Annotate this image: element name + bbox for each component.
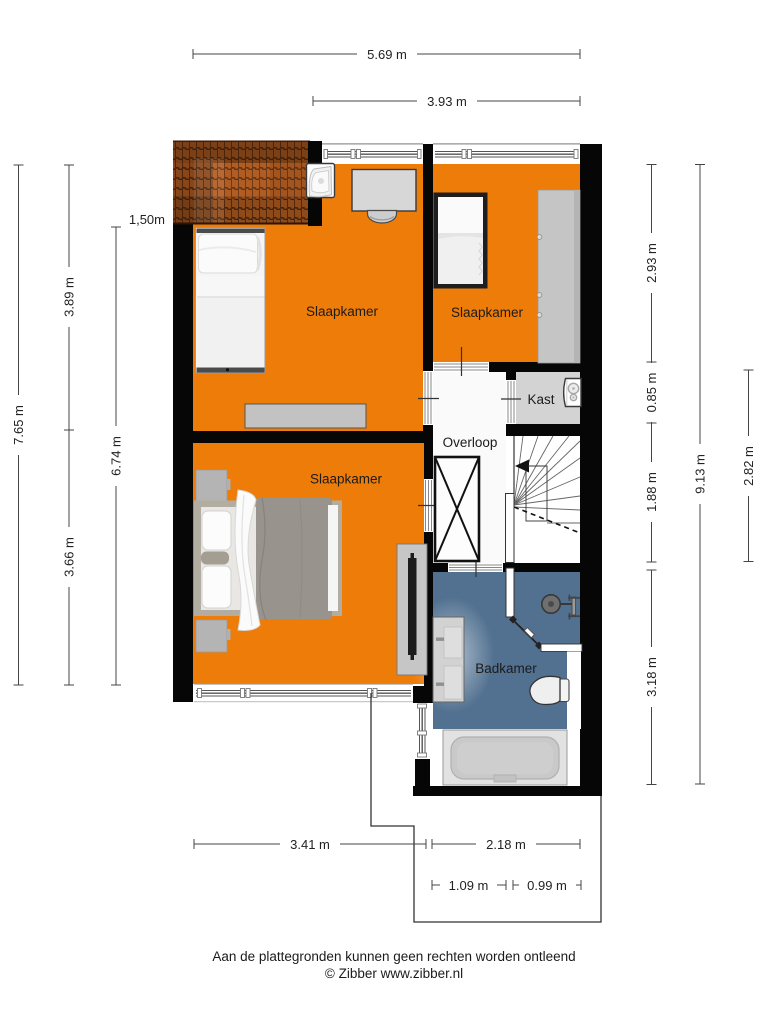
svg-text:Kast: Kast: [527, 392, 554, 407]
svg-text:Overloop: Overloop: [443, 435, 498, 450]
svg-text:© Zibber www.zibber.nl: © Zibber www.zibber.nl: [325, 966, 463, 981]
svg-text:7.65 m: 7.65 m: [11, 405, 26, 445]
svg-text:Badkamer: Badkamer: [475, 661, 537, 676]
svg-text:2.18 m: 2.18 m: [486, 837, 526, 852]
svg-text:1.88 m: 1.88 m: [644, 472, 659, 512]
svg-text:Slaapkamer: Slaapkamer: [306, 304, 379, 319]
svg-text:0.99 m: 0.99 m: [527, 878, 567, 893]
svg-text:Aan de plattegronden kunnen ge: Aan de plattegronden kunnen geen rechten…: [212, 949, 575, 964]
svg-text:3.66 m: 3.66 m: [62, 537, 77, 577]
svg-text:6.74 m: 6.74 m: [109, 436, 124, 476]
svg-text:Slaapkamer: Slaapkamer: [451, 305, 524, 320]
svg-text:3.18 m: 3.18 m: [644, 657, 659, 697]
svg-text:3.89 m: 3.89 m: [62, 277, 77, 317]
svg-text:Slaapkamer: Slaapkamer: [310, 472, 383, 487]
svg-text:0.85 m: 0.85 m: [644, 373, 659, 413]
svg-text:2.82 m: 2.82 m: [741, 446, 756, 486]
svg-text:1.09 m: 1.09 m: [449, 878, 489, 893]
svg-text:9.13 m: 9.13 m: [693, 454, 708, 494]
svg-text:1,50m: 1,50m: [129, 212, 165, 227]
svg-text:3.93 m: 3.93 m: [427, 94, 467, 109]
svg-text:2.93 m: 2.93 m: [644, 243, 659, 283]
svg-text:5.69 m: 5.69 m: [367, 47, 407, 62]
svg-text:3.41 m: 3.41 m: [290, 837, 330, 852]
